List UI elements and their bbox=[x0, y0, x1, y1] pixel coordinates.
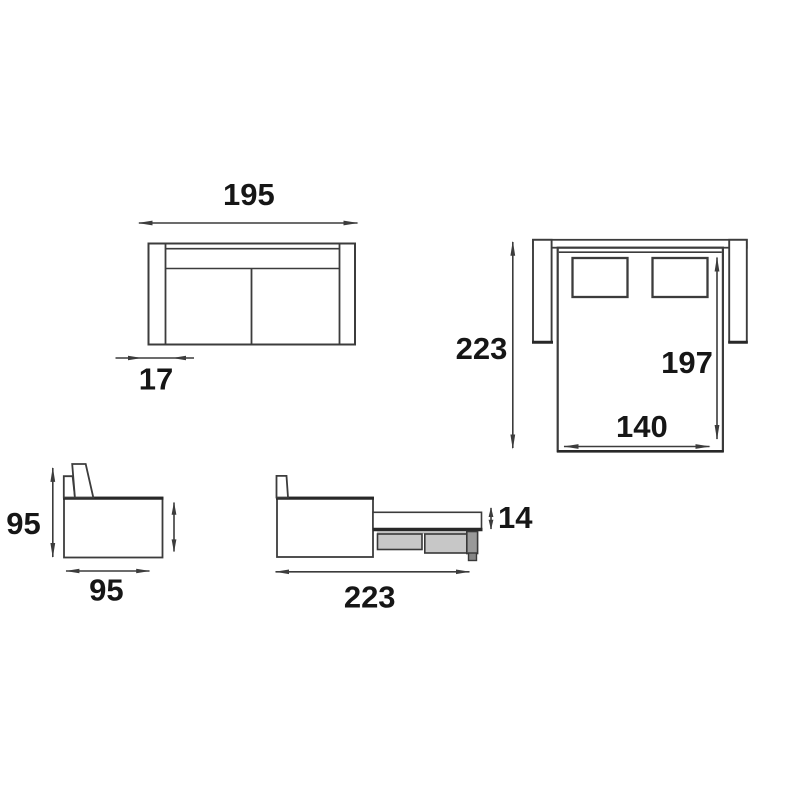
svg-text:223: 223 bbox=[344, 580, 396, 615]
svg-text:195: 195 bbox=[223, 177, 275, 212]
svg-text:17: 17 bbox=[139, 361, 173, 396]
svg-text:197: 197 bbox=[661, 345, 713, 380]
svg-text:14: 14 bbox=[498, 500, 533, 535]
svg-text:140: 140 bbox=[616, 409, 668, 444]
svg-text:95: 95 bbox=[89, 573, 123, 608]
svg-text:223: 223 bbox=[456, 331, 508, 366]
svg-text:95: 95 bbox=[6, 506, 40, 541]
